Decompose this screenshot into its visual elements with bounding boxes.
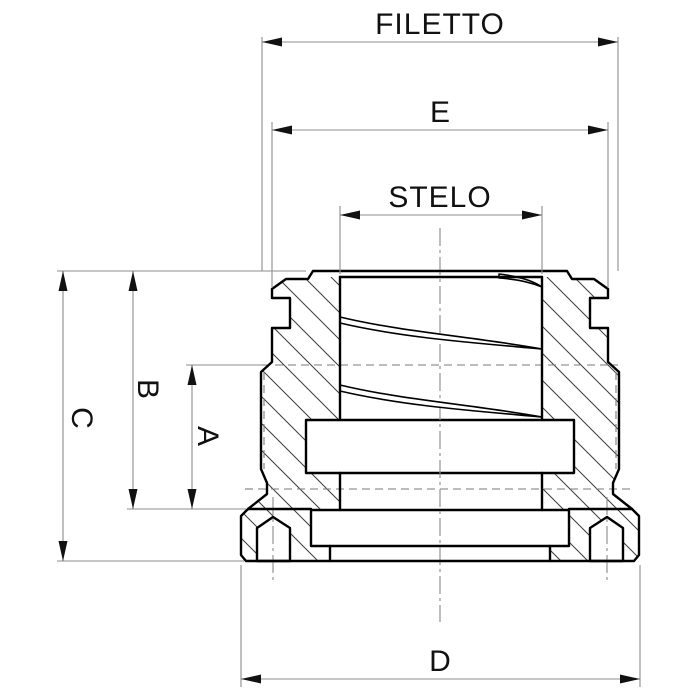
dimension-label-a: A — [191, 426, 224, 446]
stelo-arrow-right — [522, 211, 542, 220]
dimension-label-stelo: STELO — [388, 181, 491, 214]
thread-turn-2 — [340, 385, 542, 417]
dimension-b: B — [127, 271, 246, 509]
dimension-label-c: C — [65, 407, 98, 429]
bore-walls-lower — [340, 473, 542, 510]
stelo-extension-lines — [340, 206, 542, 274]
bore-walls-upper — [340, 277, 542, 420]
c-arrow-top — [59, 271, 68, 291]
e-arrow-left — [272, 126, 292, 135]
c-arrow-bottom — [59, 541, 68, 561]
dimension-stelo: STELO — [340, 181, 542, 274]
d-arrow-left — [241, 675, 261, 684]
thread-turn-1 — [340, 317, 542, 349]
dimension-label-d: D — [429, 645, 451, 678]
a-arrow-bottom — [188, 489, 197, 509]
d-arrow-right — [620, 675, 640, 684]
dimension-label-filetto: FILETTO — [375, 8, 505, 41]
e-arrow-right — [588, 126, 608, 135]
filetto-arrow-right — [598, 38, 618, 47]
stelo-arrow-left — [340, 211, 360, 220]
filetto-arrow-left — [262, 38, 282, 47]
a-arrow-top — [188, 365, 197, 385]
dimension-label-e: E — [430, 96, 450, 129]
b-arrow-top — [129, 271, 138, 291]
dimension-a: A — [186, 365, 262, 509]
b-arrow-bottom — [129, 489, 138, 509]
dimension-label-b: B — [131, 379, 164, 399]
drawing-canvas: FILETTO E STELO D C B — [0, 0, 700, 700]
technical-drawing: FILETTO E STELO D C B — [0, 0, 700, 700]
thread-helix-lines — [340, 274, 542, 417]
